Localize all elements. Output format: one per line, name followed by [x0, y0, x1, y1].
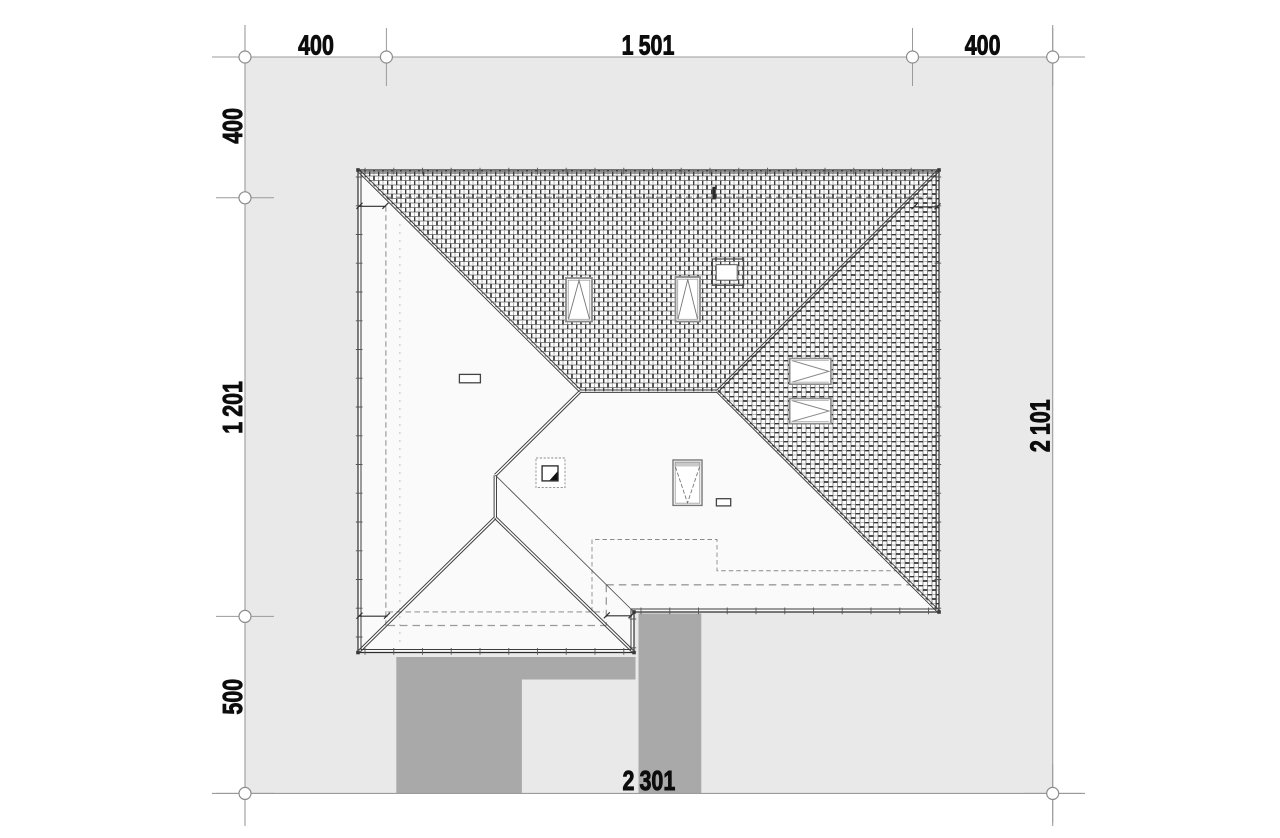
- svg-text:500: 500: [219, 679, 249, 715]
- svg-text:400: 400: [965, 31, 1001, 61]
- svg-text:2 301: 2 301: [623, 767, 676, 797]
- svg-text:2 101: 2 101: [1026, 399, 1056, 452]
- svg-text:400: 400: [298, 31, 334, 61]
- svg-text:1 501: 1 501: [622, 31, 675, 61]
- svg-text:1 201: 1 201: [219, 381, 249, 434]
- svg-text:400: 400: [219, 108, 249, 144]
